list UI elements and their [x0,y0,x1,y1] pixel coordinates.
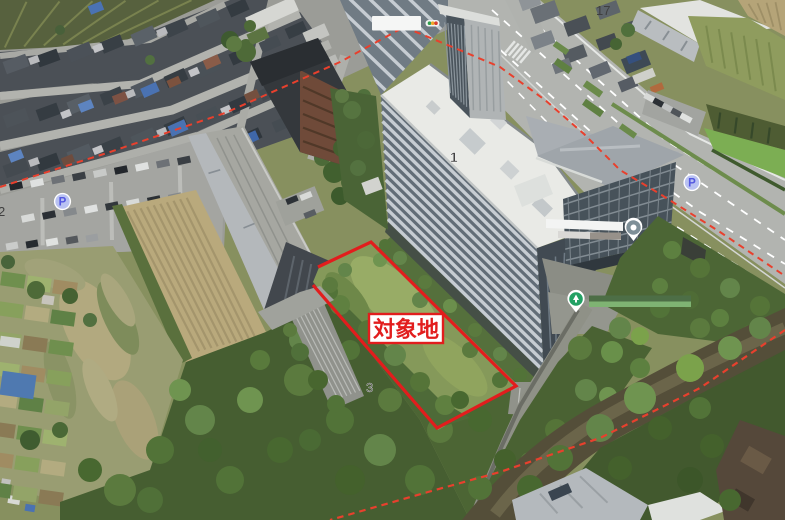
svg-text:1: 1 [450,149,458,165]
svg-text:2: 2 [0,204,5,219]
svg-text:P: P [59,197,67,209]
svg-text:P: P [688,178,696,190]
svg-text:対象地: 対象地 [373,317,439,342]
svg-text:17: 17 [596,3,610,18]
svg-text:3: 3 [366,380,373,395]
